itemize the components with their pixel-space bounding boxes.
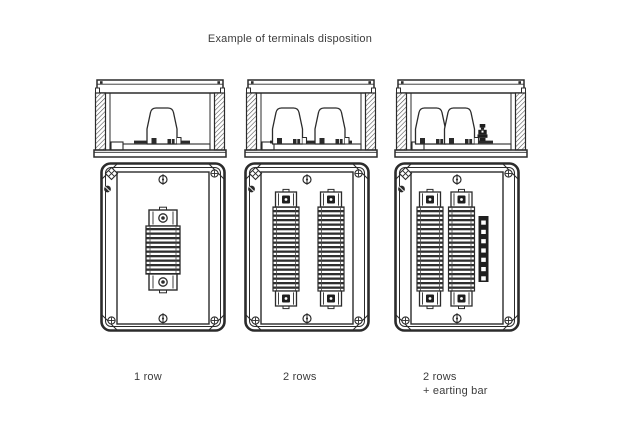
label-text: 1 row xyxy=(134,371,162,385)
enclosure-front xyxy=(246,164,369,331)
earthing-bar xyxy=(479,216,489,282)
terminal-block xyxy=(445,108,479,144)
label-text: 2 rows xyxy=(423,371,488,385)
terminal-block xyxy=(315,108,349,144)
terminal-row xyxy=(146,207,180,293)
terminal-row xyxy=(273,189,299,308)
page: Example of terminals disposition xyxy=(0,0,641,433)
terminal-row xyxy=(417,189,443,308)
view-label-1-row: 1 row xyxy=(134,371,162,385)
terminal-row xyxy=(449,189,475,308)
front-view-1-row xyxy=(100,162,226,332)
label-text: + earting bar xyxy=(423,385,488,399)
front-view-2-rows-earthing-bar xyxy=(394,162,520,332)
view-label-2-rows-earting-bar: 2 rows + earting bar xyxy=(423,371,488,398)
front-view-2-rows xyxy=(244,162,370,332)
cross-section-2-rows-earthing-bar xyxy=(394,78,528,158)
diagram-title: Example of terminals disposition xyxy=(160,33,420,45)
enclosure-shell xyxy=(245,80,377,157)
label-text: 2 rows xyxy=(283,371,317,385)
view-label-2-rows: 2 rows xyxy=(283,371,317,385)
cross-section-1-row xyxy=(93,78,227,158)
cross-section-2-rows xyxy=(244,78,378,158)
terminal-row xyxy=(318,189,344,308)
terminal-block xyxy=(273,108,307,144)
terminal-block xyxy=(147,108,181,144)
